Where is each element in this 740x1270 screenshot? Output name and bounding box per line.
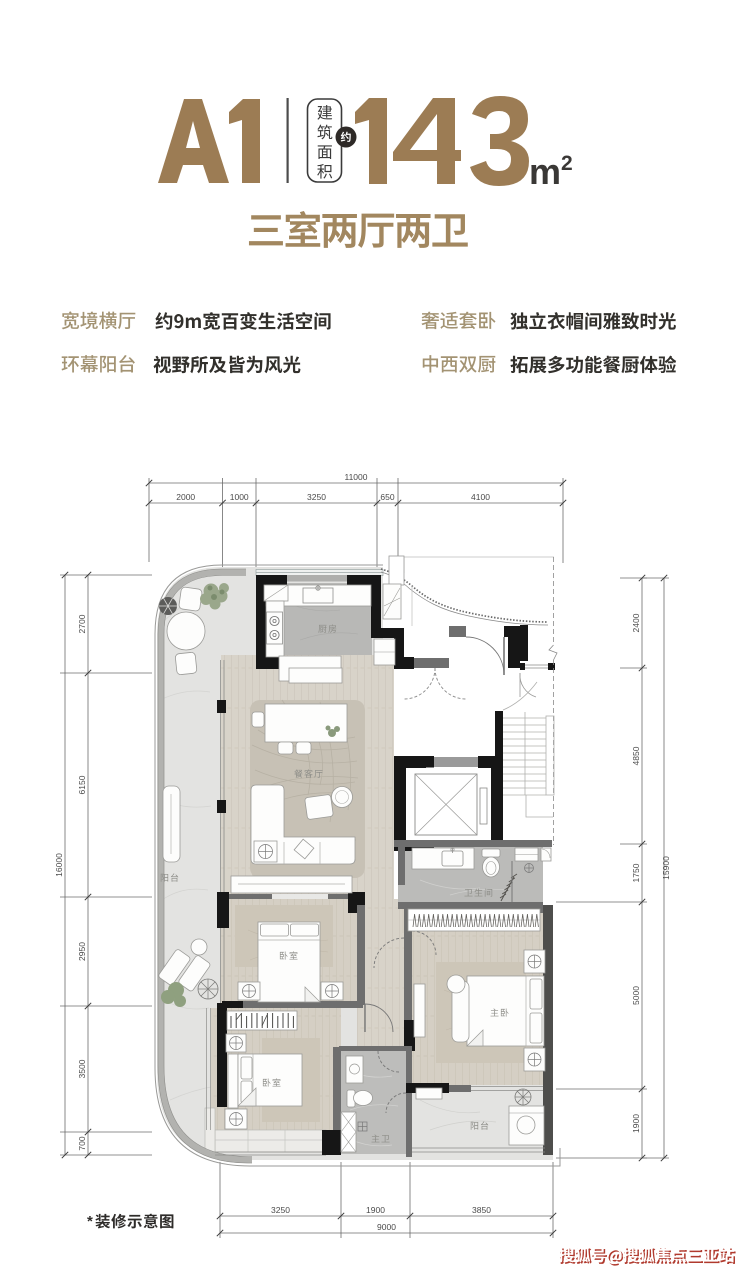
- svg-text:3500: 3500: [77, 1059, 87, 1078]
- svg-text:3250: 3250: [271, 1205, 290, 1215]
- svg-text:5000: 5000: [631, 986, 641, 1005]
- svg-text:2400: 2400: [631, 613, 641, 632]
- svg-text:3850: 3850: [472, 1205, 491, 1215]
- svg-text:3250: 3250: [307, 492, 326, 502]
- svg-text:700: 700: [77, 1136, 87, 1150]
- svg-text:1750: 1750: [631, 863, 641, 882]
- svg-text:2700: 2700: [77, 614, 87, 633]
- svg-text:15900: 15900: [661, 856, 671, 880]
- svg-text:11000: 11000: [344, 472, 367, 482]
- svg-text:1000: 1000: [230, 492, 249, 502]
- svg-text:6150: 6150: [77, 775, 87, 794]
- svg-text:*: *: [87, 1213, 93, 1230]
- svg-text:1900: 1900: [631, 1114, 641, 1133]
- svg-text:2950: 2950: [77, 942, 87, 961]
- svg-text:16000: 16000: [54, 853, 64, 877]
- svg-text:1900: 1900: [366, 1205, 385, 1215]
- svg-text:4100: 4100: [471, 492, 490, 502]
- svg-text:9000: 9000: [377, 1222, 396, 1232]
- svg-text:2000: 2000: [176, 492, 195, 502]
- svg-text:2: 2: [561, 152, 573, 175]
- svg-text:650: 650: [380, 492, 394, 502]
- svg-text:m: m: [529, 151, 561, 192]
- svg-text:4850: 4850: [631, 746, 641, 765]
